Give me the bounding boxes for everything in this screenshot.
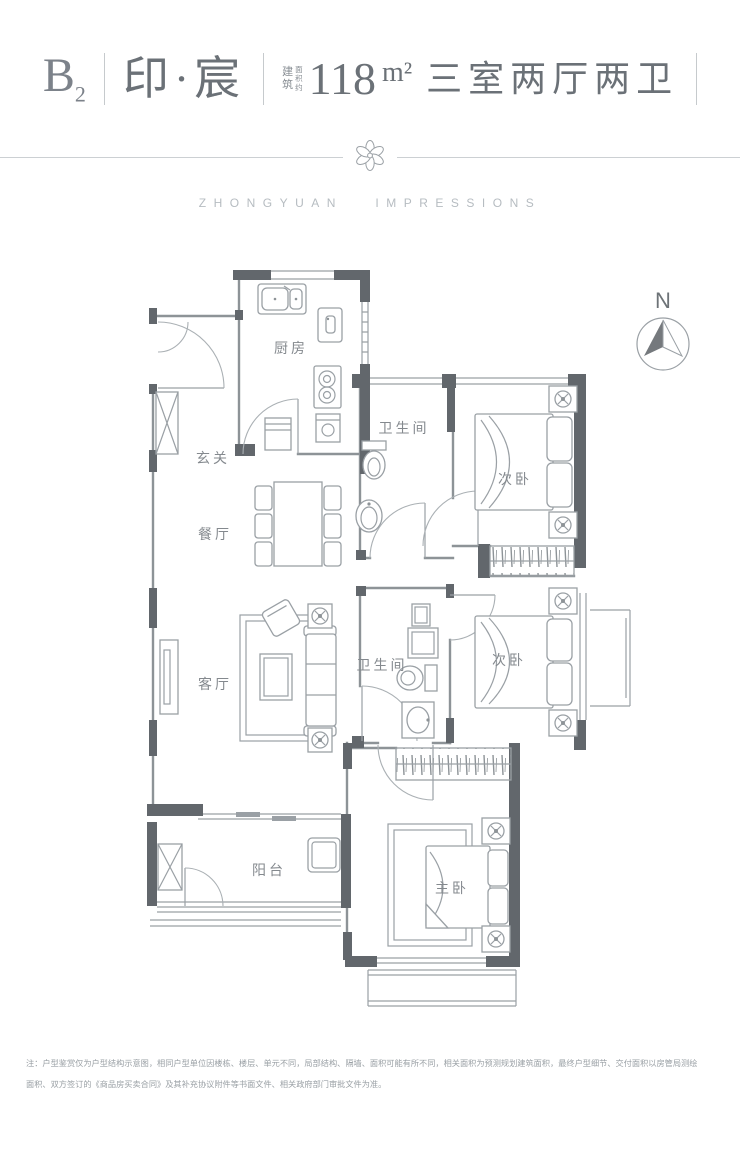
flower-ornament-icon: [343, 137, 397, 180]
disclaimer: 注：户型鉴赏仅为户型结构示意图，相同户型单位因楼栋、楼层、单元不同，局部结构、隔…: [26, 1060, 714, 1089]
wash-basin: [356, 500, 382, 532]
header: B2 印·宸 建筑 面积约 118 m² 三室两厅两卫: [0, 52, 740, 106]
brand-wordmark: ZHONGYUAN IMPRESSIONS: [0, 196, 740, 210]
unit-code: B2: [43, 52, 86, 106]
kitchen-stove: [314, 366, 341, 408]
armchair: [261, 598, 301, 637]
room-label-entry: 玄关: [196, 448, 230, 468]
room-label-balcony: 阳台: [252, 860, 286, 880]
room-label-dining: 餐厅: [198, 524, 232, 544]
tv-cabinet: [160, 640, 178, 714]
living-room-furniture: [160, 598, 336, 752]
kitchen-appliance: [318, 308, 342, 342]
north-arrow: N: [628, 284, 698, 378]
floor-plan-drawing: [138, 258, 668, 1013]
layout-description: 三室两厅两卫: [426, 61, 678, 97]
room-label-bath-upper: 卫生间: [379, 418, 430, 438]
north-label: N: [655, 288, 671, 313]
room-label-living: 客厅: [198, 674, 232, 694]
room-label-bedroom-middle: 次卧: [492, 650, 526, 670]
room-label-kitchen: 厨房: [274, 338, 308, 358]
bedroom-upper-furniture: [475, 386, 577, 538]
wash-basin: [402, 702, 434, 738]
dining-table-set: [255, 482, 341, 566]
sofa: [304, 626, 336, 736]
kitchen-fixtures: [258, 284, 342, 450]
room-label-bedroom-upper: 次卧: [498, 469, 532, 489]
area-prefix: 建筑 面积约: [282, 65, 303, 92]
disclaimer-line-2: 面积、双方签订的《商品房买卖合同》及其补充协议附件等书面文件、相关政府部门审批文…: [26, 1081, 714, 1089]
kitchen-sink: [258, 284, 306, 314]
ornament-divider: [0, 138, 740, 178]
room-label-master-bedroom: 主卧: [435, 878, 469, 898]
north-arrow-dark-half: [644, 320, 663, 356]
divider-bar: [104, 53, 105, 105]
divider-bar: [696, 53, 697, 105]
divider-bar: [263, 53, 264, 105]
shoe-cabinet: [265, 418, 291, 450]
area-value: 118: [309, 56, 376, 102]
washing-machine: [158, 844, 182, 890]
area-group: 建筑 面积约 118 m² 三室两厅两卫: [282, 56, 678, 102]
master-bedroom-furniture: [388, 748, 511, 952]
project-name: 印·宸: [123, 56, 245, 102]
disclaimer-line-1: 注：户型鉴赏仅为户型结构示意图，相同户型单位因楼栋、楼层、单元不同，局部结构、隔…: [26, 1060, 714, 1068]
closet-hangers: [490, 546, 574, 576]
toilet: [362, 441, 386, 479]
utility-shaft: [156, 392, 178, 454]
area-unit: m²: [382, 57, 412, 89]
kitchen-cabinet: [316, 414, 340, 442]
floorplan-page: B2 印·宸 建筑 面积约 118 m² 三室两厅两卫: [0, 0, 740, 1155]
north-arrow-light-half: [663, 320, 682, 356]
room-label-bath-lower: 卫生间: [357, 655, 408, 675]
bedroom-middle-furniture: [475, 588, 577, 736]
